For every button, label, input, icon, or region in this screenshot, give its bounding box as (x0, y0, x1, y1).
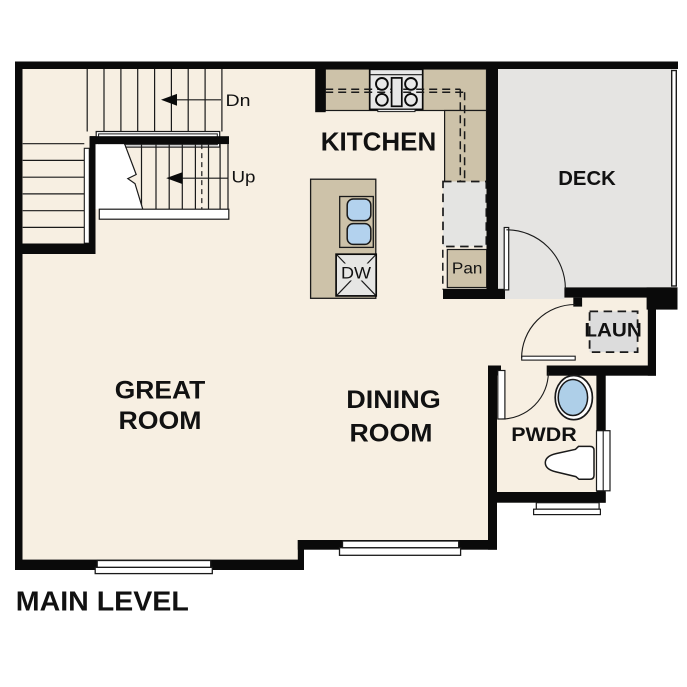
svg-text:DECK: DECK (558, 168, 616, 190)
svg-text:DW: DW (341, 264, 371, 283)
svg-text:GREAT: GREAT (115, 377, 206, 405)
svg-text:Dn: Dn (226, 91, 251, 110)
svg-text:DINING: DINING (346, 386, 441, 414)
svg-text:Up: Up (232, 168, 256, 187)
svg-text:Pan: Pan (452, 261, 483, 278)
svg-text:PWDR: PWDR (511, 425, 577, 446)
svg-text:LAUN: LAUN (584, 321, 642, 342)
svg-text:ROOM: ROOM (350, 420, 433, 448)
svg-text:KITCHEN: KITCHEN (321, 127, 437, 157)
svg-text:MAIN LEVEL: MAIN LEVEL (16, 586, 189, 617)
svg-text:ROOM: ROOM (119, 407, 202, 435)
